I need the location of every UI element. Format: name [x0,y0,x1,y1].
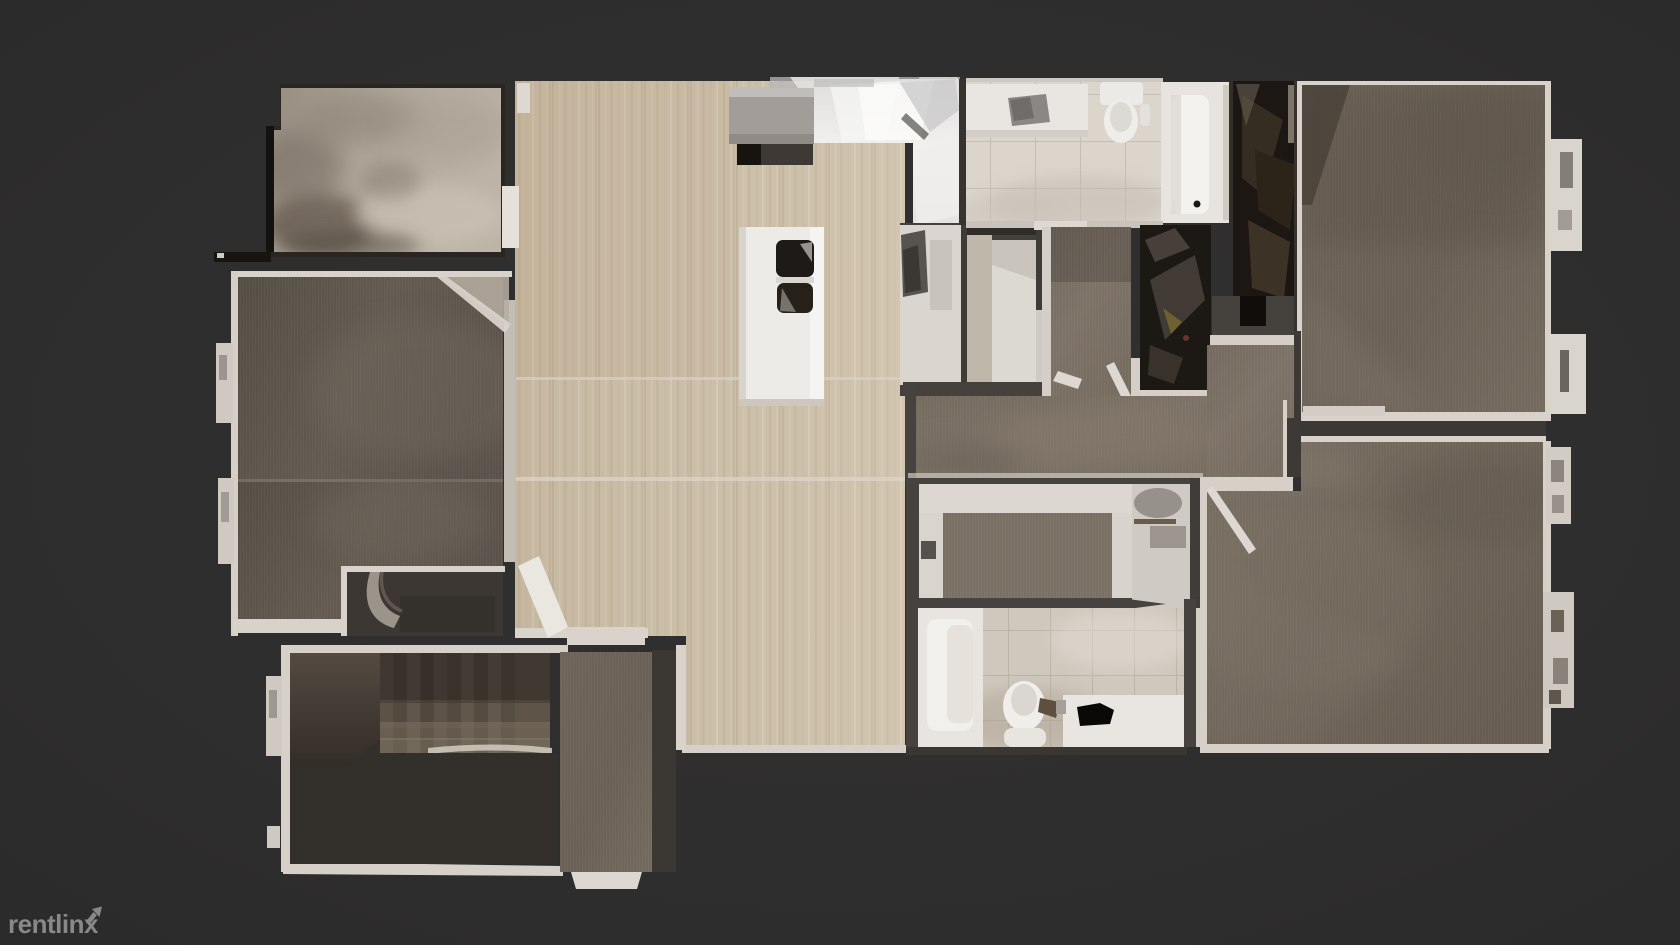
svg-text:rentlinx: rentlinx [8,909,99,939]
